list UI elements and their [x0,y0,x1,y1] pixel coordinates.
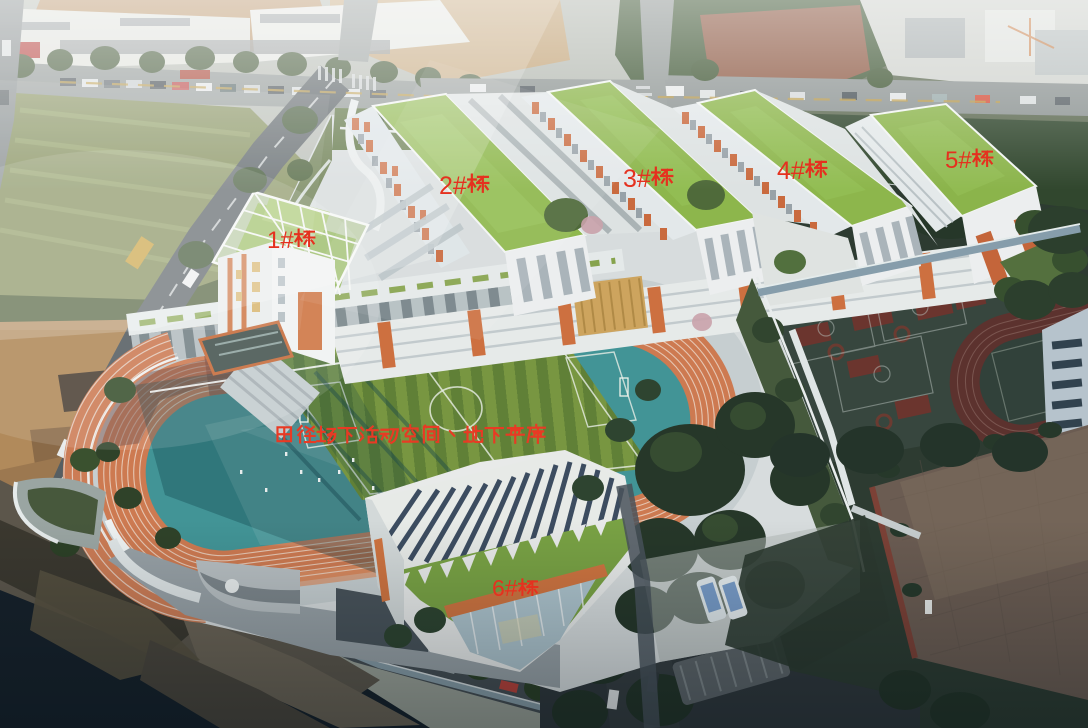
svg-text:2#: 2# [439,172,467,200]
svg-text:4#: 4# [777,157,805,185]
svg-text:6#: 6# [492,575,518,601]
svg-text:1#: 1# [267,227,294,254]
svg-text:5#: 5# [945,147,972,174]
svg-text:3#: 3# [623,165,651,193]
